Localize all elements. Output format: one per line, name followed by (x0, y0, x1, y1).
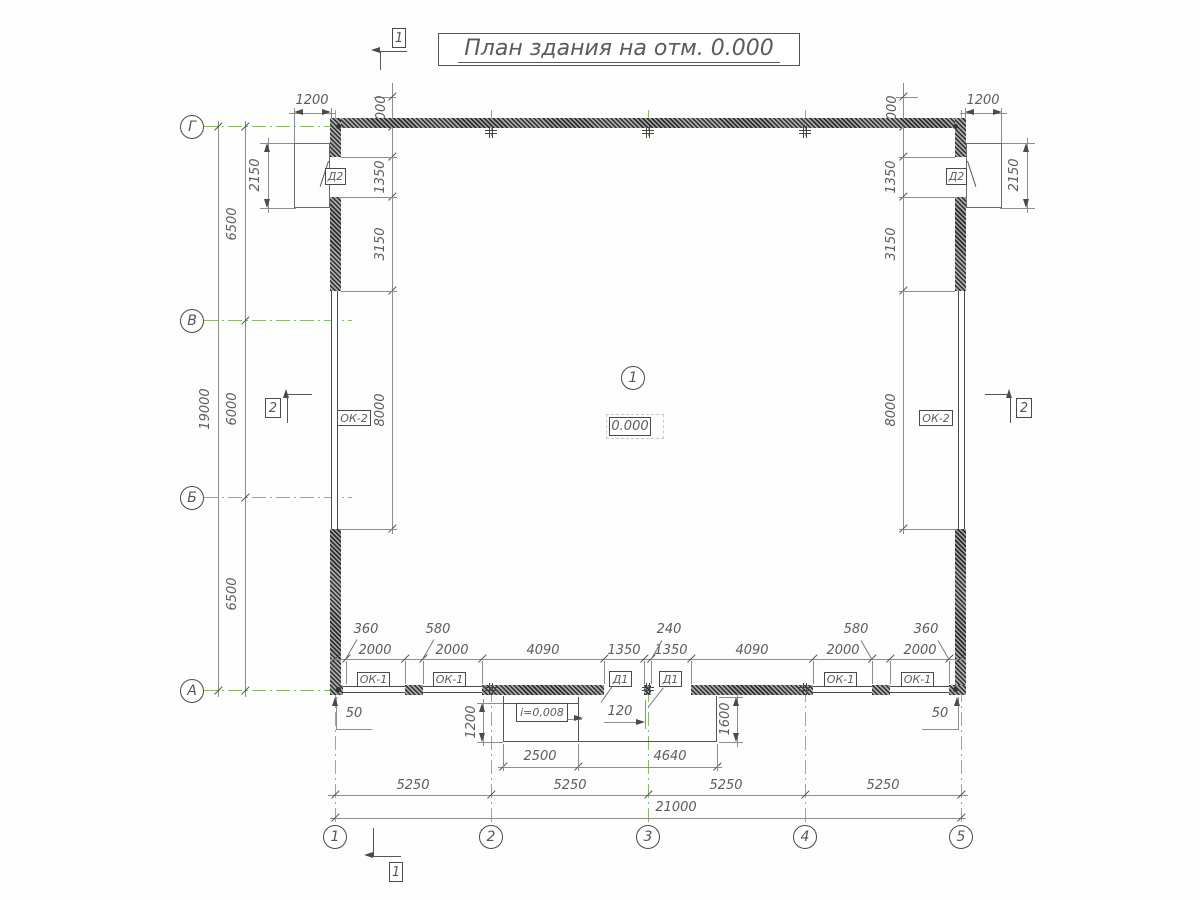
arrow-down (264, 199, 270, 208)
dim-label-5250: 5250 (861, 779, 905, 793)
dim-label-1350: 1350 (602, 644, 646, 658)
dim-label-580: 580 (420, 623, 456, 637)
dim-label-5250: 5250 (548, 779, 592, 793)
arrow-right (574, 715, 583, 721)
ext-line (423, 661, 424, 684)
window-glazing-ok2 (958, 291, 965, 529)
dim-label-1350: 1350 (373, 147, 389, 207)
wall-pier (872, 685, 890, 695)
dim-label-1350: 1350 (884, 147, 900, 207)
section-1-marker: 1 (389, 862, 403, 882)
dim-label-240: 240 (651, 623, 687, 637)
dim-label-6000: 6000 (225, 379, 241, 439)
section-2-marker: 2 (265, 398, 281, 418)
dim-label-2150: 2150 (248, 145, 264, 205)
ext-line (578, 744, 579, 771)
arrow-up (264, 143, 270, 152)
dim-label-8000: 8000 (884, 380, 900, 440)
drawing-title-box: План здания на отм. 0.000 (438, 33, 800, 66)
wall-segment-right (955, 529, 966, 695)
door-callout-d2: Д2 (325, 168, 346, 185)
wall-segment-bottom (482, 685, 604, 695)
dim-label-4090: 4090 (730, 644, 774, 658)
dim-line (330, 818, 966, 819)
dim-line (498, 767, 722, 768)
section-2-marker: 2 (1016, 398, 1032, 418)
dim-label-6500: 6500 (225, 194, 241, 254)
dim-label-1200: 1200 (963, 94, 1003, 108)
dim-label-3150: 3150 (373, 214, 389, 274)
section-line (380, 51, 407, 52)
axis-bubble-b: Б (180, 486, 204, 510)
door-callout-d2: Д2 (946, 168, 967, 185)
section-1-marker: 1 (392, 28, 406, 48)
dim-line (218, 121, 219, 697)
section-line (287, 395, 288, 423)
ext-line (1001, 108, 1002, 143)
window-glazing-ok1 (343, 686, 405, 693)
ext-line (965, 108, 966, 118)
axis-bubble-3: 3 (636, 825, 660, 849)
arrow-up (332, 697, 338, 706)
section-line (287, 394, 312, 395)
section-line (985, 394, 1010, 395)
ext-line (604, 661, 605, 684)
section-line (380, 51, 381, 70)
door-callout-d1: Д1 (659, 671, 682, 687)
dim-label-2000: 2000 (821, 644, 865, 658)
corner-dot (336, 124, 341, 129)
dim-label-19000: 19000 (198, 379, 214, 439)
section-line (373, 856, 401, 857)
arrow-left (294, 109, 303, 115)
dim-label-3150: 3150 (884, 214, 900, 274)
ext-line (1000, 208, 1035, 209)
axis-bubble-4: 4 (793, 825, 817, 849)
ext-line (872, 661, 873, 684)
dim-line (245, 121, 246, 697)
window-glazing-ok1 (890, 686, 949, 693)
ext-line (477, 703, 503, 704)
ext-line (341, 529, 397, 530)
column-mark (642, 126, 654, 138)
dim-label-1000: 1000 (885, 82, 901, 142)
dim-label-2150: 2150 (1007, 145, 1023, 205)
window-callout-ok2: ОК-2 (337, 410, 371, 426)
dim-line (336, 729, 372, 730)
ext-line (890, 661, 891, 684)
ext-line (294, 108, 295, 143)
arrow-up (1023, 143, 1029, 152)
dim-label-2000: 2000 (430, 644, 474, 658)
arrow-left (965, 109, 974, 115)
column-mark (799, 126, 811, 138)
window-callout-ok2: ОК-2 (919, 410, 953, 426)
corner-dot (336, 687, 341, 692)
dim-line (392, 83, 393, 534)
corner-dot (953, 687, 958, 692)
ext-line (346, 661, 347, 684)
ext-line (477, 742, 503, 743)
arrow-down (1023, 199, 1029, 208)
ext-line (717, 744, 718, 771)
dim-label-1200: 1200 (464, 692, 480, 752)
column-mark (799, 683, 811, 695)
arrow-up (954, 697, 960, 706)
dim-label-360: 360 (348, 623, 384, 637)
door-callout-d1: Д1 (609, 671, 632, 687)
ext-line (331, 108, 332, 118)
axis-line-2 (491, 688, 492, 825)
dim-label-6500: 6500 (225, 564, 241, 624)
dim-label-21000: 21000 (648, 801, 704, 815)
section-line (373, 828, 374, 857)
level-mark: 0.000 (609, 417, 651, 436)
dim-label-2500: 2500 (518, 750, 562, 764)
ext-line (482, 661, 483, 684)
dim-label-50: 50 (342, 707, 366, 721)
column-mark (642, 683, 654, 695)
window-callout-ok1: ОК-1 (357, 672, 390, 687)
wall-segment-bottom (691, 685, 813, 695)
ext-line (691, 661, 692, 684)
dim-label-1600: 1600 (718, 689, 734, 749)
dim-line (903, 83, 904, 534)
ext-line (949, 661, 950, 684)
window-callout-ok1: ОК-1 (433, 672, 466, 687)
dim-label-4640: 4640 (648, 750, 692, 764)
section-line (1010, 395, 1011, 423)
axis-bubble-g: Г (180, 115, 204, 139)
column-mark (485, 683, 497, 695)
dim-label-580: 580 (838, 623, 874, 637)
floor-plan-drawing: 19000 6500 6000 6500 2150 1200 1000 1350… (0, 0, 1200, 900)
ext-line (1000, 143, 1035, 144)
dim-line (922, 729, 958, 730)
dim-label-2000: 2000 (353, 644, 397, 658)
ext-line (651, 661, 652, 684)
wall-pier (405, 685, 423, 695)
dim-label-2000: 2000 (898, 644, 942, 658)
ext-line (644, 661, 645, 684)
ext-line (813, 661, 814, 684)
axis-bubble-a: А (180, 679, 204, 703)
corner-dot (953, 124, 958, 129)
ext-line (260, 208, 296, 209)
drawing-title: План здания на отм. 0.000 (458, 36, 779, 63)
axis-bubble-5: 5 (949, 825, 973, 849)
dim-label-50: 50 (928, 707, 952, 721)
dim-label-1000: 1000 (374, 82, 390, 142)
column-mark (485, 126, 497, 138)
dim-label-4090: 4090 (521, 644, 565, 658)
dim-label-1200: 1200 (292, 94, 332, 108)
ext-line (260, 143, 296, 144)
axis-line-b (204, 497, 352, 498)
ext-line (899, 157, 955, 158)
axis-bubble-1: 1 (323, 825, 347, 849)
section-arrow (364, 852, 373, 858)
axis-bubble-2: 2 (479, 825, 503, 849)
ext-line (899, 197, 955, 198)
dim-label-8000: 8000 (373, 380, 389, 440)
axis-line-5 (961, 688, 962, 825)
axis-line-v (204, 320, 352, 321)
dim-label-5250: 5250 (704, 779, 748, 793)
section-arrow (371, 47, 380, 53)
wall-segment-right (955, 197, 966, 291)
ext-line (405, 661, 406, 684)
window-glazing-ok1 (813, 686, 872, 693)
ext-line (503, 744, 504, 771)
room-number-bubble: 1 (621, 366, 645, 390)
slope-callout: i=0,008 (516, 703, 568, 722)
dim-label-360: 360 (908, 623, 944, 637)
dim-label-5250: 5250 (391, 779, 435, 793)
arrow-right (322, 109, 331, 115)
wall-segment-left (330, 197, 341, 291)
window-callout-ok1: ОК-1 (901, 672, 934, 687)
axis-line-4 (805, 688, 806, 825)
ext-line (899, 291, 955, 292)
wall-segment-left (330, 529, 341, 695)
ext-line (899, 529, 955, 530)
axis-bubble-v: В (180, 309, 204, 333)
window-callout-ok1: ОК-1 (824, 672, 857, 687)
ext-line (341, 291, 397, 292)
